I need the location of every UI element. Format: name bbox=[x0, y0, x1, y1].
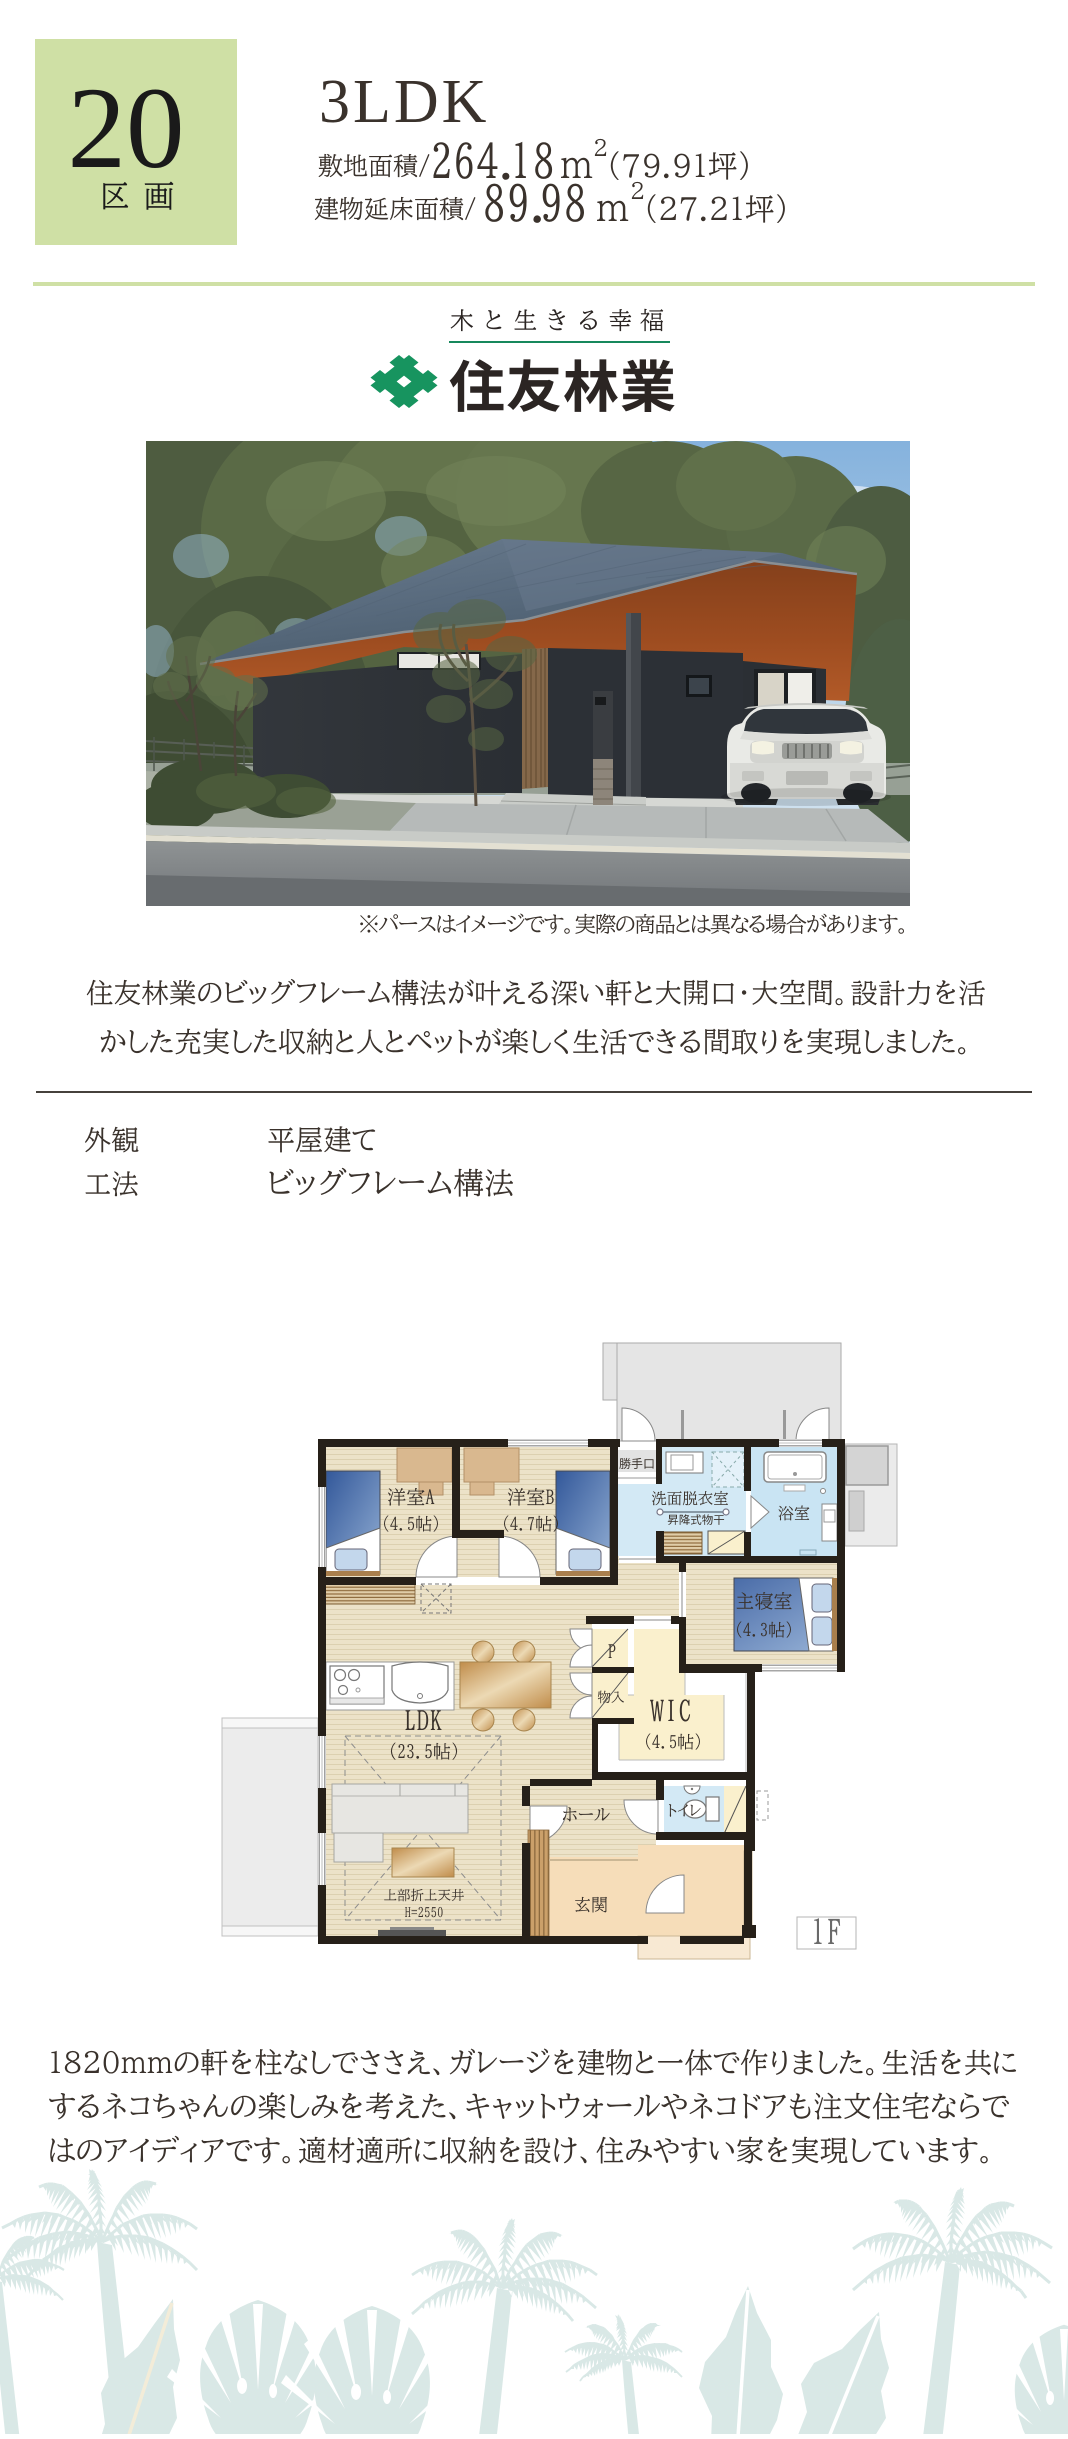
svg-text:3LDK: 3LDK bbox=[319, 68, 489, 136]
svg-text:20: 20 bbox=[68, 64, 185, 193]
